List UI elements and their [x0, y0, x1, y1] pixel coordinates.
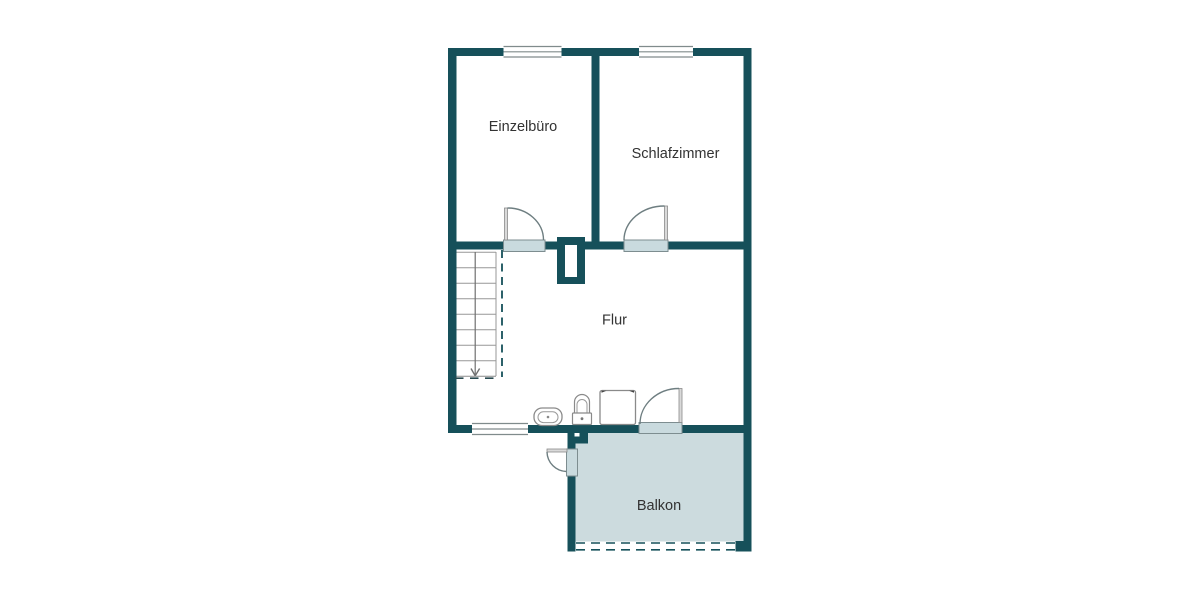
svg-text:Einzelbüro: Einzelbüro — [489, 119, 558, 135]
svg-text:Flur: Flur — [602, 313, 627, 329]
svg-text:Schlafzimmer: Schlafzimmer — [632, 146, 720, 162]
svg-text:Balkon: Balkon — [637, 498, 681, 514]
